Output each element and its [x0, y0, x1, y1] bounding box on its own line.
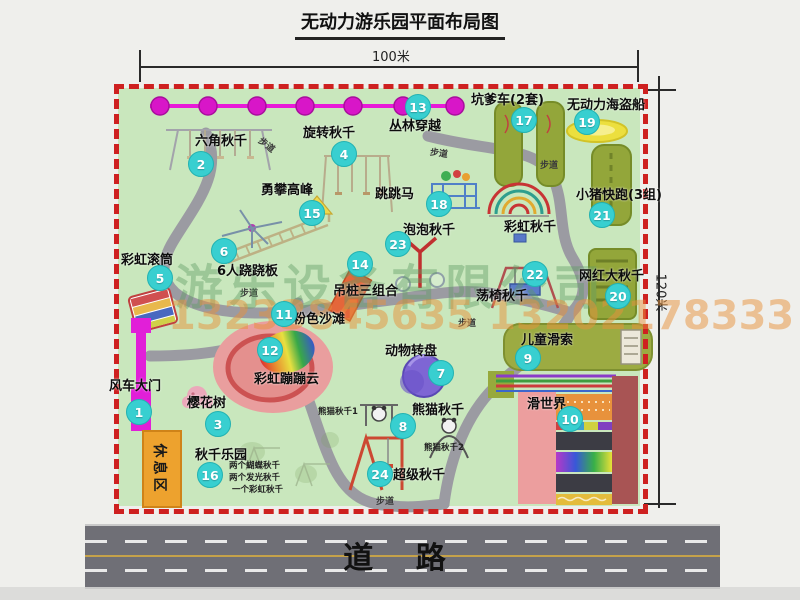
attraction-badge-2: 2	[188, 151, 214, 177]
attraction-badge-21: 21	[589, 202, 615, 228]
attraction-label-3: 樱花树	[187, 392, 226, 411]
attraction-label-14: 吊桩三组合	[333, 280, 398, 299]
attraction-label-21: 小猪快跑(3组)	[576, 184, 662, 203]
attraction-label-12: 彩虹蹦蹦云	[254, 368, 319, 387]
attraction-badge-18: 18	[426, 191, 452, 217]
attraction-badge-5: 5	[147, 265, 173, 291]
attraction-badge-15: 15	[299, 200, 325, 226]
attraction-badge-13: 13	[405, 94, 431, 120]
attraction-badge-7: 7	[428, 360, 454, 386]
attraction-badge-16: 16	[197, 462, 223, 488]
attraction-badge-9: 9	[515, 345, 541, 371]
attraction-badge-8: 8	[390, 413, 416, 439]
attraction-badge-10: 10	[557, 406, 583, 432]
attraction-badge-17: 17	[511, 107, 537, 133]
attraction-label-22: 荡椅秋千	[476, 285, 528, 304]
attraction-badge-12: 12	[257, 337, 283, 363]
road: 道 路	[85, 524, 720, 589]
swing-park-detail-3: 一个彩虹秋千	[232, 483, 283, 495]
walkway-label: 步道	[376, 494, 394, 507]
attraction-label-17: 坑爹车(2套)	[471, 89, 544, 108]
rest-area-label: 休息区	[150, 435, 170, 503]
attraction-label-11: 粉色沙滩	[293, 308, 345, 327]
attraction-badge-4: 4	[331, 141, 357, 167]
attraction-label-24: 超级秋千	[393, 464, 445, 483]
attraction-label-18: 跳跳马	[375, 183, 414, 202]
attraction-label-19: 无动力海盗船	[567, 94, 645, 113]
attraction-badge-14: 14	[347, 251, 373, 277]
panda-swing-1-label: 熊猫秋千1	[318, 405, 358, 417]
attraction-badge-11: 11	[271, 301, 297, 327]
attraction-badge-22: 22	[522, 261, 548, 287]
attraction-label-20: 网红大秋千	[579, 265, 644, 284]
attraction-label-23: 泡泡秋千	[403, 219, 455, 238]
road-label: 道 路	[343, 533, 461, 577]
panda-swing-2-label: 熊猫秋千2	[424, 441, 464, 453]
attraction-badge-19: 19	[574, 109, 600, 135]
attraction-label-15: 勇攀高峰	[261, 179, 313, 198]
attraction-badge-3: 3	[205, 411, 231, 437]
swing-park-detail-1: 两个蝴蝶秋千	[229, 459, 280, 471]
attraction-badge-23: 23	[385, 231, 411, 257]
attraction-label-7: 动物转盘	[385, 340, 437, 359]
attraction-label-2: 六角秋千	[195, 130, 247, 149]
walkway-label: 步道	[540, 158, 558, 171]
attraction-badge-1: 1	[126, 399, 152, 425]
park-layout-map: 无动力游乐园平面布局图 100米 120米	[0, 0, 800, 600]
attraction-badge-24: 24	[367, 461, 393, 487]
attraction-badge-20: 20	[605, 283, 631, 309]
attraction-badge-6: 6	[211, 238, 237, 264]
swing-park-detail-2: 两个发光秋千	[229, 471, 280, 483]
slide-world-icon	[488, 371, 638, 505]
attraction-label-8: 熊猫秋千	[412, 399, 464, 418]
attraction-label-1: 风车大门	[109, 375, 161, 394]
walkway-label: 步道	[429, 145, 449, 160]
rainbow-swing-label: 彩虹秋千	[504, 216, 556, 235]
attraction-label-4: 旋转秋千	[303, 122, 355, 141]
